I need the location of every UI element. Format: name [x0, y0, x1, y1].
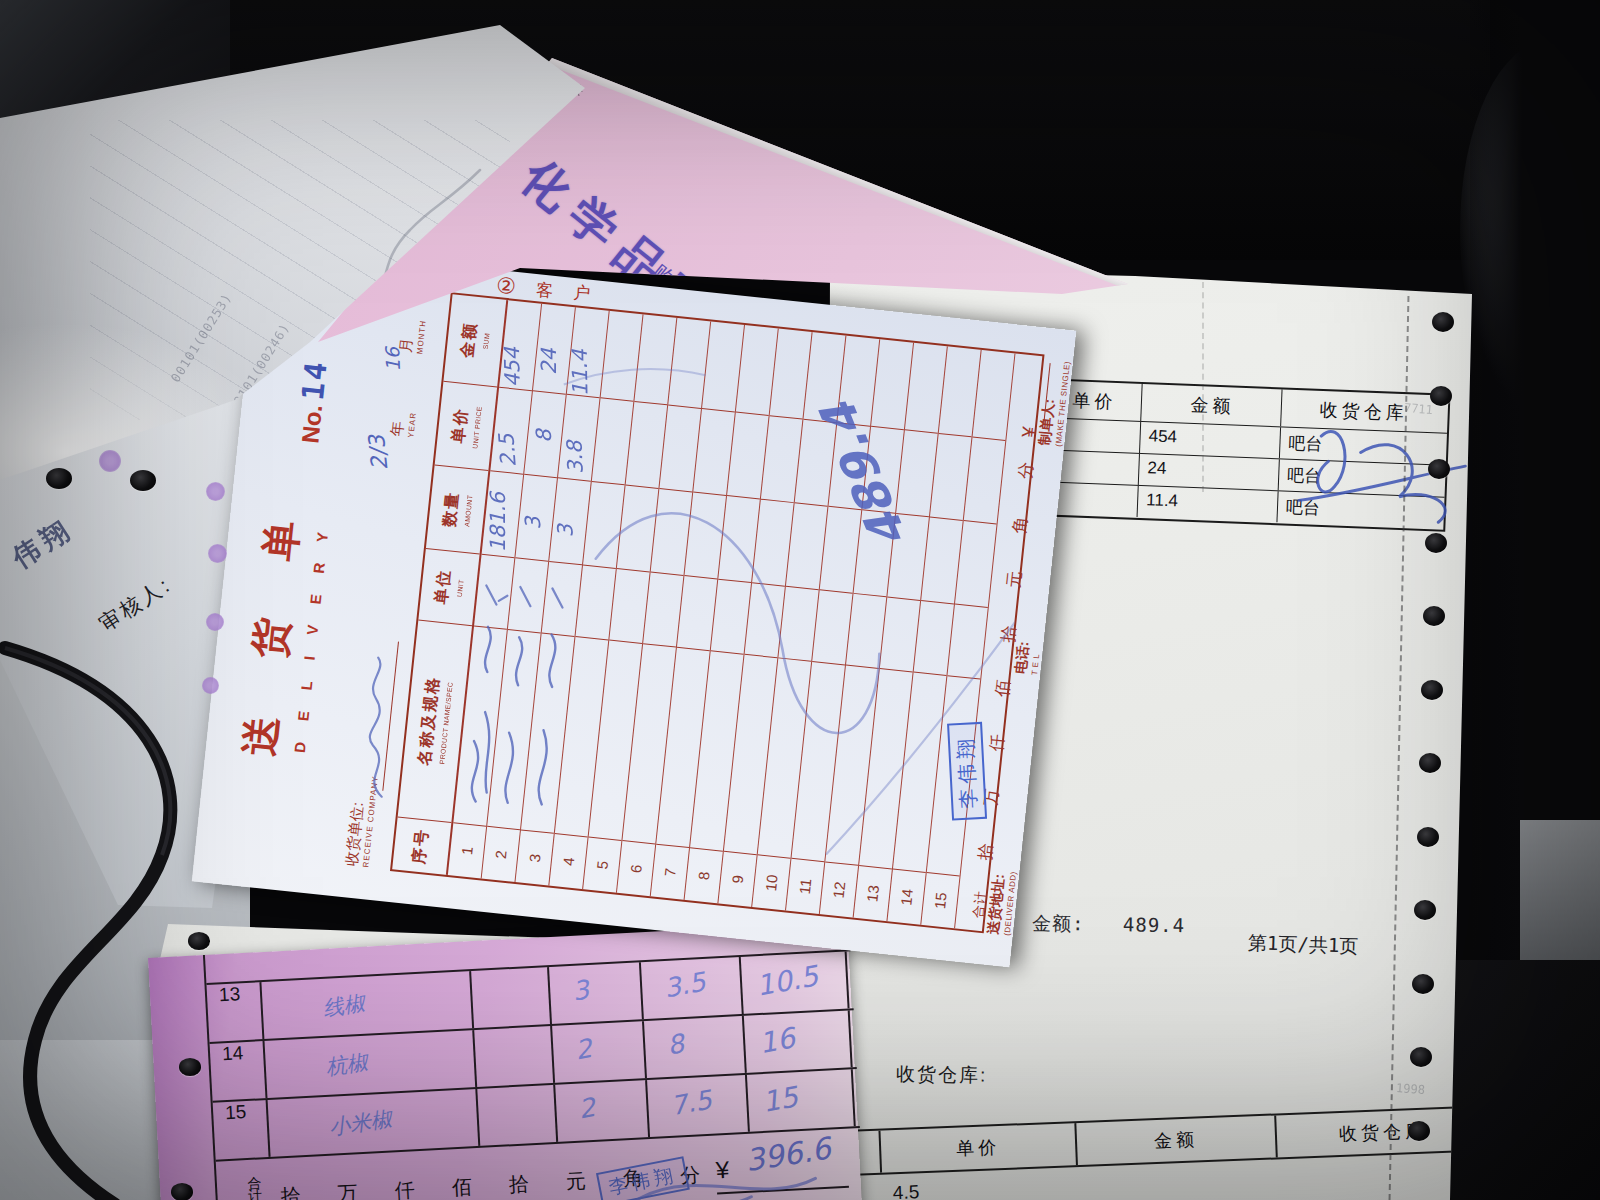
handwritten-sum: 15 — [760, 1080, 801, 1119]
tractor-feed-hole — [1419, 753, 1441, 773]
table-cell — [634, 314, 676, 405]
receive-company: 收货单位: RECEIVE COMPANY — [342, 773, 379, 868]
handwriting-units — [476, 557, 582, 633]
note-number: No. 14 — [290, 358, 334, 444]
table-cell — [617, 485, 659, 572]
bottom-table-value: 4.5 — [892, 1181, 919, 1200]
pink-cell — [474, 1026, 555, 1087]
table-cell — [521, 633, 575, 833]
perforation-line-inner — [1202, 282, 1204, 492]
year-label: 年 — [387, 420, 405, 437]
summary-table-top: 单价金额收货仓库454吧台24吧台11.4吧台 — [1040, 378, 1451, 531]
summary-total-line: 金额: 489.4 — [1032, 911, 1186, 940]
pink-cell — [471, 967, 552, 1028]
column-header: 金额SUM — [443, 294, 506, 387]
row-number: 5 — [583, 838, 621, 893]
table-row: 2 — [482, 304, 576, 882]
column-header-en: UNIT — [455, 579, 465, 597]
pink-cell: 3 — [549, 962, 644, 1024]
faint-mark: 7711 — [1403, 401, 1433, 417]
table-cell — [668, 318, 710, 409]
auditor-label: 审核人: — [94, 570, 177, 638]
copy-label-2: 户 — [573, 283, 591, 303]
table-cell — [474, 555, 514, 630]
table-cell — [626, 402, 668, 489]
table-cell — [524, 391, 566, 478]
table-cell — [558, 395, 600, 482]
tractor-feed-hole — [1430, 386, 1452, 406]
copy-label-1: 客 — [535, 281, 553, 301]
table-row: 1 — [448, 300, 542, 878]
column-header-cn: 单位 — [431, 567, 456, 605]
pink-cell — [477, 1085, 558, 1146]
table-row: 3 — [515, 307, 609, 885]
col-unit-price: 单价 — [878, 1123, 1075, 1172]
handwriting-product-names — [454, 561, 591, 831]
row-number: 11 — [786, 859, 824, 914]
pink-row-number: 15 — [212, 1087, 247, 1124]
glue-dot — [99, 450, 121, 472]
tractor-feed-hole — [1421, 680, 1443, 700]
table-cell — [601, 311, 643, 402]
month-label: 月 — [396, 337, 414, 354]
table-cell — [549, 478, 591, 565]
table-cell — [515, 475, 557, 562]
punch-hole — [179, 1058, 201, 1076]
column-header-en: SUM — [481, 333, 491, 350]
column-header: 单价UNIT PRICE — [435, 382, 497, 471]
column-header-en: UNIT PRICE — [471, 405, 484, 448]
table-cell — [499, 300, 541, 391]
punch-hole — [46, 468, 72, 489]
faint-mark: 1998 — [1396, 1081, 1426, 1097]
table-row: 7 — [651, 322, 745, 900]
summary-price-cell — [1044, 418, 1140, 453]
handwritten-unit_price: 8 — [532, 429, 556, 442]
table-cell — [575, 565, 615, 640]
table-row: 4 — [549, 311, 643, 889]
summary-price-cell — [1043, 450, 1139, 485]
table-cell — [508, 558, 548, 633]
table-cell — [786, 503, 828, 590]
table-cell — [583, 482, 625, 569]
pink-amount-word: 拾 — [280, 1182, 301, 1200]
handwritten-unit_price: 2.5 — [494, 433, 520, 468]
summary-total-label: 金额: — [1032, 912, 1085, 935]
background-right — [1470, 0, 1600, 1200]
pink-cell: 3.5 — [641, 957, 744, 1019]
summary-warehouse-cell: 吧台 — [1276, 491, 1440, 528]
pink-currency-symbol: ¥ — [715, 1156, 730, 1185]
pink-cell: 15 — [213, 1100, 271, 1160]
summary-amount-cell: 11.4 — [1137, 486, 1278, 522]
row-number: 7 — [651, 845, 689, 900]
row-number: 1 — [448, 823, 486, 878]
column-header: 数量AMOUNT — [426, 465, 488, 554]
warehouse-label: 收货仓库: — [896, 1061, 988, 1088]
column-header-cn: 数量 — [439, 490, 464, 528]
tractor-feed-hole — [1408, 1121, 1430, 1141]
handwritten-price: 7.5 — [668, 1084, 714, 1121]
summary-amount-cell: 24 — [1138, 454, 1279, 490]
table-cell — [487, 630, 541, 830]
pink-row-number: 14 — [209, 1028, 244, 1065]
handwritten-product-name: 杭椒 — [324, 1048, 369, 1082]
table-cell — [656, 648, 710, 848]
fold-code: 00101(00253) — [168, 290, 235, 385]
handwritten-price: 8 — [665, 1028, 687, 1060]
pink-cell: 2 — [555, 1080, 650, 1142]
pink-cell: 杭椒 — [265, 1030, 478, 1098]
handwritten-sum: 11.4 — [568, 349, 593, 396]
table-cell — [778, 587, 818, 662]
column-header-en: AMOUNT — [463, 494, 475, 527]
machine-blob — [1460, 40, 1600, 420]
pink-cell: 7.5 — [647, 1075, 750, 1137]
summary-amount-cell: 454 — [1139, 422, 1280, 458]
summary-total-value: 489.4 — [1123, 913, 1186, 936]
punch-hole — [188, 932, 210, 950]
pink-row-number: 13 — [206, 969, 241, 1006]
column-header-cn: 单价 — [448, 406, 473, 444]
tractor-feed-hole — [1425, 533, 1447, 553]
table-cell — [643, 573, 683, 648]
pink-amount-word: 仟 — [394, 1176, 415, 1200]
table-cell — [736, 325, 778, 416]
table-cell — [659, 405, 701, 492]
row-number: 2 — [482, 827, 520, 882]
table-cell — [690, 651, 744, 851]
glue-dot — [206, 482, 225, 501]
pink-cell: 15 — [747, 1069, 856, 1131]
column-header-cn: 名称及规格 — [414, 675, 444, 767]
handwritten-sum: 454 — [500, 347, 525, 388]
handwritten-unit_price: 3.8 — [563, 440, 588, 474]
handwritten-amount: 181.6 — [486, 492, 510, 552]
tractor-feed-hole — [1412, 974, 1434, 994]
date-month: 月 MONTH — [396, 318, 427, 355]
table-cell — [592, 398, 634, 485]
glue-dot — [206, 613, 224, 631]
column-header-en: PRODUCT NAME/SPEC — [438, 681, 455, 764]
table-cell — [533, 304, 575, 395]
handwritten-amount: 3 — [553, 524, 577, 538]
column-header: 单位UNIT — [418, 549, 479, 626]
row-number: 3 — [515, 830, 553, 885]
table-cell — [482, 471, 524, 558]
tractor-feed-hole — [1428, 459, 1450, 479]
table-cell — [567, 307, 609, 398]
table-row: 6 — [617, 318, 711, 896]
summary-price-cell — [1042, 482, 1138, 517]
tractor-feed-hole — [1417, 827, 1439, 847]
summary-col-header: 单价 — [1045, 380, 1141, 421]
table-cell — [490, 388, 532, 475]
pink-cell: 2 — [552, 1021, 647, 1083]
table-cell — [589, 641, 643, 841]
year-en: YEAR — [406, 412, 418, 439]
handwritten-product-name: 小米椒 — [327, 1105, 393, 1141]
handwritten-qty: 2 — [576, 1092, 598, 1124]
row-number: 6 — [617, 841, 655, 896]
tractor-feed-hole — [1410, 1047, 1432, 1067]
row-number: 10 — [752, 855, 790, 910]
table-cell — [758, 658, 812, 858]
handwritten-qty: 2 — [573, 1033, 595, 1065]
column-header: 序号 — [392, 817, 451, 874]
col-warehouse: 收货仓库 — [1274, 1107, 1489, 1157]
month-en: MONTH — [415, 320, 428, 355]
pink-cell: 8 — [644, 1016, 747, 1078]
handwritten-price: 3.5 — [662, 967, 708, 1004]
table-cell — [684, 493, 726, 580]
glue-dot — [208, 544, 227, 563]
page-indicator: 第1页/共1页 — [1248, 930, 1359, 959]
note-number-value: 14 — [295, 358, 334, 402]
note-title-en: DELIVERY — [284, 463, 339, 823]
table-cell — [693, 409, 735, 496]
background-bottom-right-grey — [1520, 820, 1600, 1040]
handwritten-sum: 24 — [537, 348, 561, 375]
table-cell — [677, 576, 717, 651]
fold-code: 00110(01131) — [286, 350, 353, 445]
col-amount: 金额 — [1074, 1116, 1275, 1166]
pink-cell: 16 — [744, 1010, 853, 1072]
column-header-cn: 序号 — [408, 827, 433, 865]
table-cell — [622, 644, 676, 844]
auditor-signature: 伟翔 — [6, 510, 81, 576]
handwritten-sum: 16 — [757, 1021, 798, 1060]
summary-table-bottom: 量 单价 金额 收货仓库 4.5 — [818, 1105, 1497, 1200]
row-number: 4 — [549, 834, 587, 889]
handwritten-date: 2/3 — [364, 434, 393, 472]
date-year: 年 YEAR — [387, 410, 418, 439]
table-cell — [745, 583, 785, 658]
table-cell — [542, 562, 582, 637]
table-cell — [727, 413, 769, 500]
table-row: 8 — [685, 325, 779, 903]
handwritten-sum: 10.5 — [754, 959, 821, 1002]
table-cell — [724, 655, 778, 855]
row-number: 9 — [718, 852, 756, 907]
summary-col-header: 金额 — [1140, 384, 1281, 426]
glue-dot — [202, 677, 219, 694]
handwritten-date-2: 16 — [381, 347, 404, 372]
summary-warehouse-cell: 吧台 — [1278, 459, 1442, 496]
table-row: 5 — [583, 314, 677, 892]
punch-hole — [171, 1183, 193, 1200]
row-number: 8 — [685, 848, 723, 903]
table-cell — [702, 322, 744, 413]
pink-total-label: 合计 — [221, 1164, 262, 1190]
summary-warehouse-cell: 吧台 — [1279, 427, 1443, 464]
pink-delivery-copy: 13线椒33.510.514杭椒281615小米椒27.515 合计 拾万仟佰拾… — [148, 921, 863, 1200]
table-cell — [651, 489, 693, 576]
pink-cell: 10.5 — [741, 951, 850, 1013]
handwritten-amount: 3 — [521, 516, 546, 531]
handwritten-product-name: 线椒 — [321, 989, 366, 1023]
note-number-label: No. — [296, 403, 327, 444]
table-cell — [711, 580, 751, 655]
handwritten-company-scribble — [351, 652, 410, 806]
punch-hole — [130, 470, 156, 491]
quantity-box-label: 数量 — [584, 310, 648, 370]
table-row: 9 — [718, 329, 812, 907]
copy-number-mark: ② 客 户 — [495, 273, 591, 306]
copy-circle-2: ② — [495, 273, 516, 299]
pink-amount-word: 万 — [337, 1179, 358, 1200]
table-cell — [770, 329, 812, 420]
summary-table-bottom-header: 量 单价 金额 收货仓库 — [821, 1107, 1494, 1177]
photo-scene: 伟翔 审核人: 单价金额收货仓库454吧台24吧台11.4吧台 金额: 489.… — [0, 0, 1600, 1200]
tractor-feed-hole — [1432, 312, 1454, 332]
pink-cell: 线椒 — [261, 971, 474, 1039]
handwritten-qty: 3 — [570, 974, 592, 1006]
table-cell — [555, 637, 609, 837]
receive-company-blank — [368, 640, 399, 791]
note-subheader: 收货单位: RECEIVE COMPANY 年 YEAR 月 MONTH — [340, 288, 444, 869]
table-cell — [609, 569, 649, 644]
table-cell — [761, 416, 803, 503]
receive-company-en: RECEIVE COMPANY — [361, 775, 380, 868]
receive-company-label: 收货单位: — [342, 801, 366, 867]
table-cell — [752, 500, 794, 587]
column-header: 名称及规格PRODUCT NAME/SPEC — [398, 621, 472, 824]
column-header-cn: 金额 — [457, 321, 482, 359]
table-cell — [453, 626, 507, 826]
pink-cell: 小米椒 — [268, 1089, 481, 1157]
table-header-row: 序号名称及规格PRODUCT NAME/SPEC单位UNIT数量AMOUNT单价… — [392, 294, 508, 875]
table-cell — [718, 496, 760, 583]
